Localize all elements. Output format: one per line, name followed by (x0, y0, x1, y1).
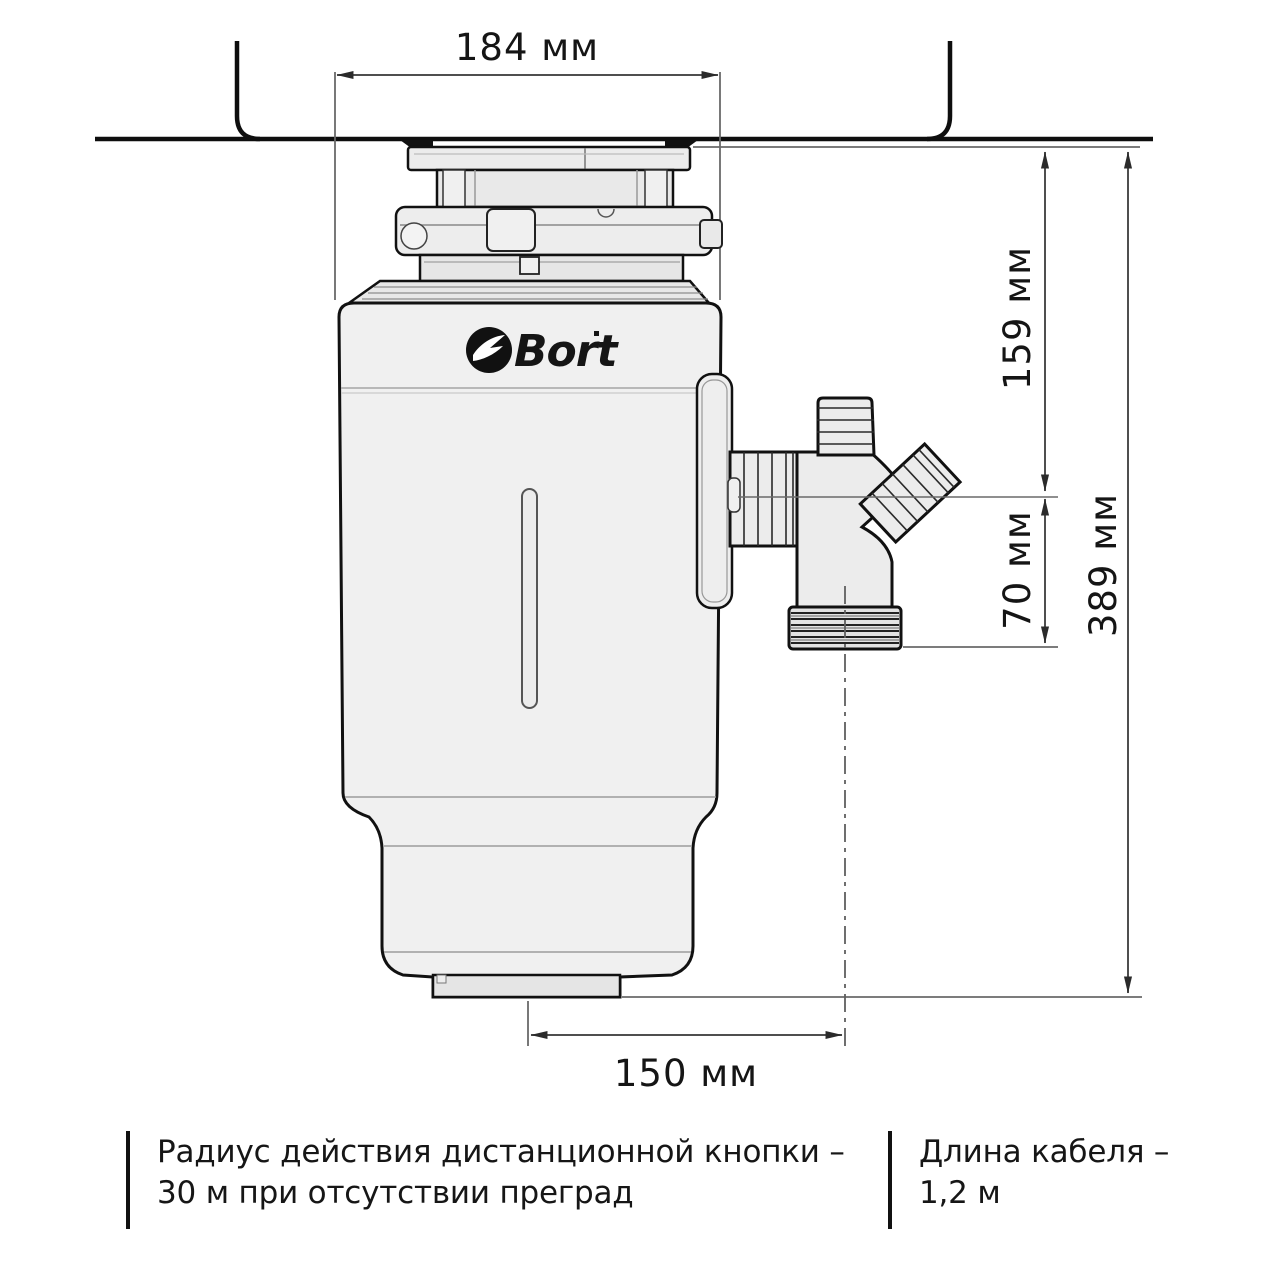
mounting-ring-block (487, 209, 535, 251)
dim-label-flange-to-outlet: 159 мм (996, 246, 1039, 390)
dim-label-total-height: 389 мм (1082, 493, 1125, 637)
body-slot (522, 489, 537, 708)
fitting-barb-up (818, 398, 874, 455)
mounting-bolt-left (443, 170, 465, 207)
lower-ring (420, 255, 683, 281)
mounting-bolt-right (645, 170, 667, 207)
mounting-ring-cap (401, 223, 427, 249)
dimension-diagram-page: 184 мм 159 мм 70 мм 389 мм 150 мм Bort Р… (0, 0, 1280, 1280)
drain-fitting (728, 398, 960, 649)
base-pedestal (433, 975, 620, 997)
dim-label-base-offset: 150 мм (614, 1052, 758, 1095)
base-notch (437, 975, 446, 983)
note-cable-length: Длина кабеля – 1,2 м (888, 1131, 1169, 1229)
sink-flange (408, 147, 690, 170)
note-remote-line1: Радиус действия дистанционной кнопки – (157, 1132, 845, 1173)
mounting-ring-lug (700, 220, 722, 248)
disposer-dimension-drawing: 184 мм 159 мм 70 мм 389 мм 150 мм Bort (0, 0, 1280, 1280)
dim-label-outlet-drop: 70 мм (996, 510, 1039, 630)
bort-logo-text: Bort (514, 326, 619, 377)
outlet-clip (728, 478, 740, 512)
body-shoulder (349, 281, 709, 303)
sink-outline (95, 41, 1153, 139)
lower-ring-tab (520, 257, 539, 274)
mounting-ring (396, 207, 712, 255)
dim-label-top-width: 184 мм (455, 26, 599, 69)
note-cable-line1: Длина кабеля – (919, 1132, 1169, 1173)
disposer-unit (339, 140, 732, 997)
note-remote-line2: 30 м при отсутствии преград (157, 1173, 845, 1214)
trademark-dot (594, 331, 599, 336)
bort-logo: Bort (466, 326, 619, 377)
note-remote-range: Радиус действия дистанционной кнопки – 3… (126, 1131, 845, 1229)
note-cable-line2: 1,2 м (919, 1173, 1169, 1214)
